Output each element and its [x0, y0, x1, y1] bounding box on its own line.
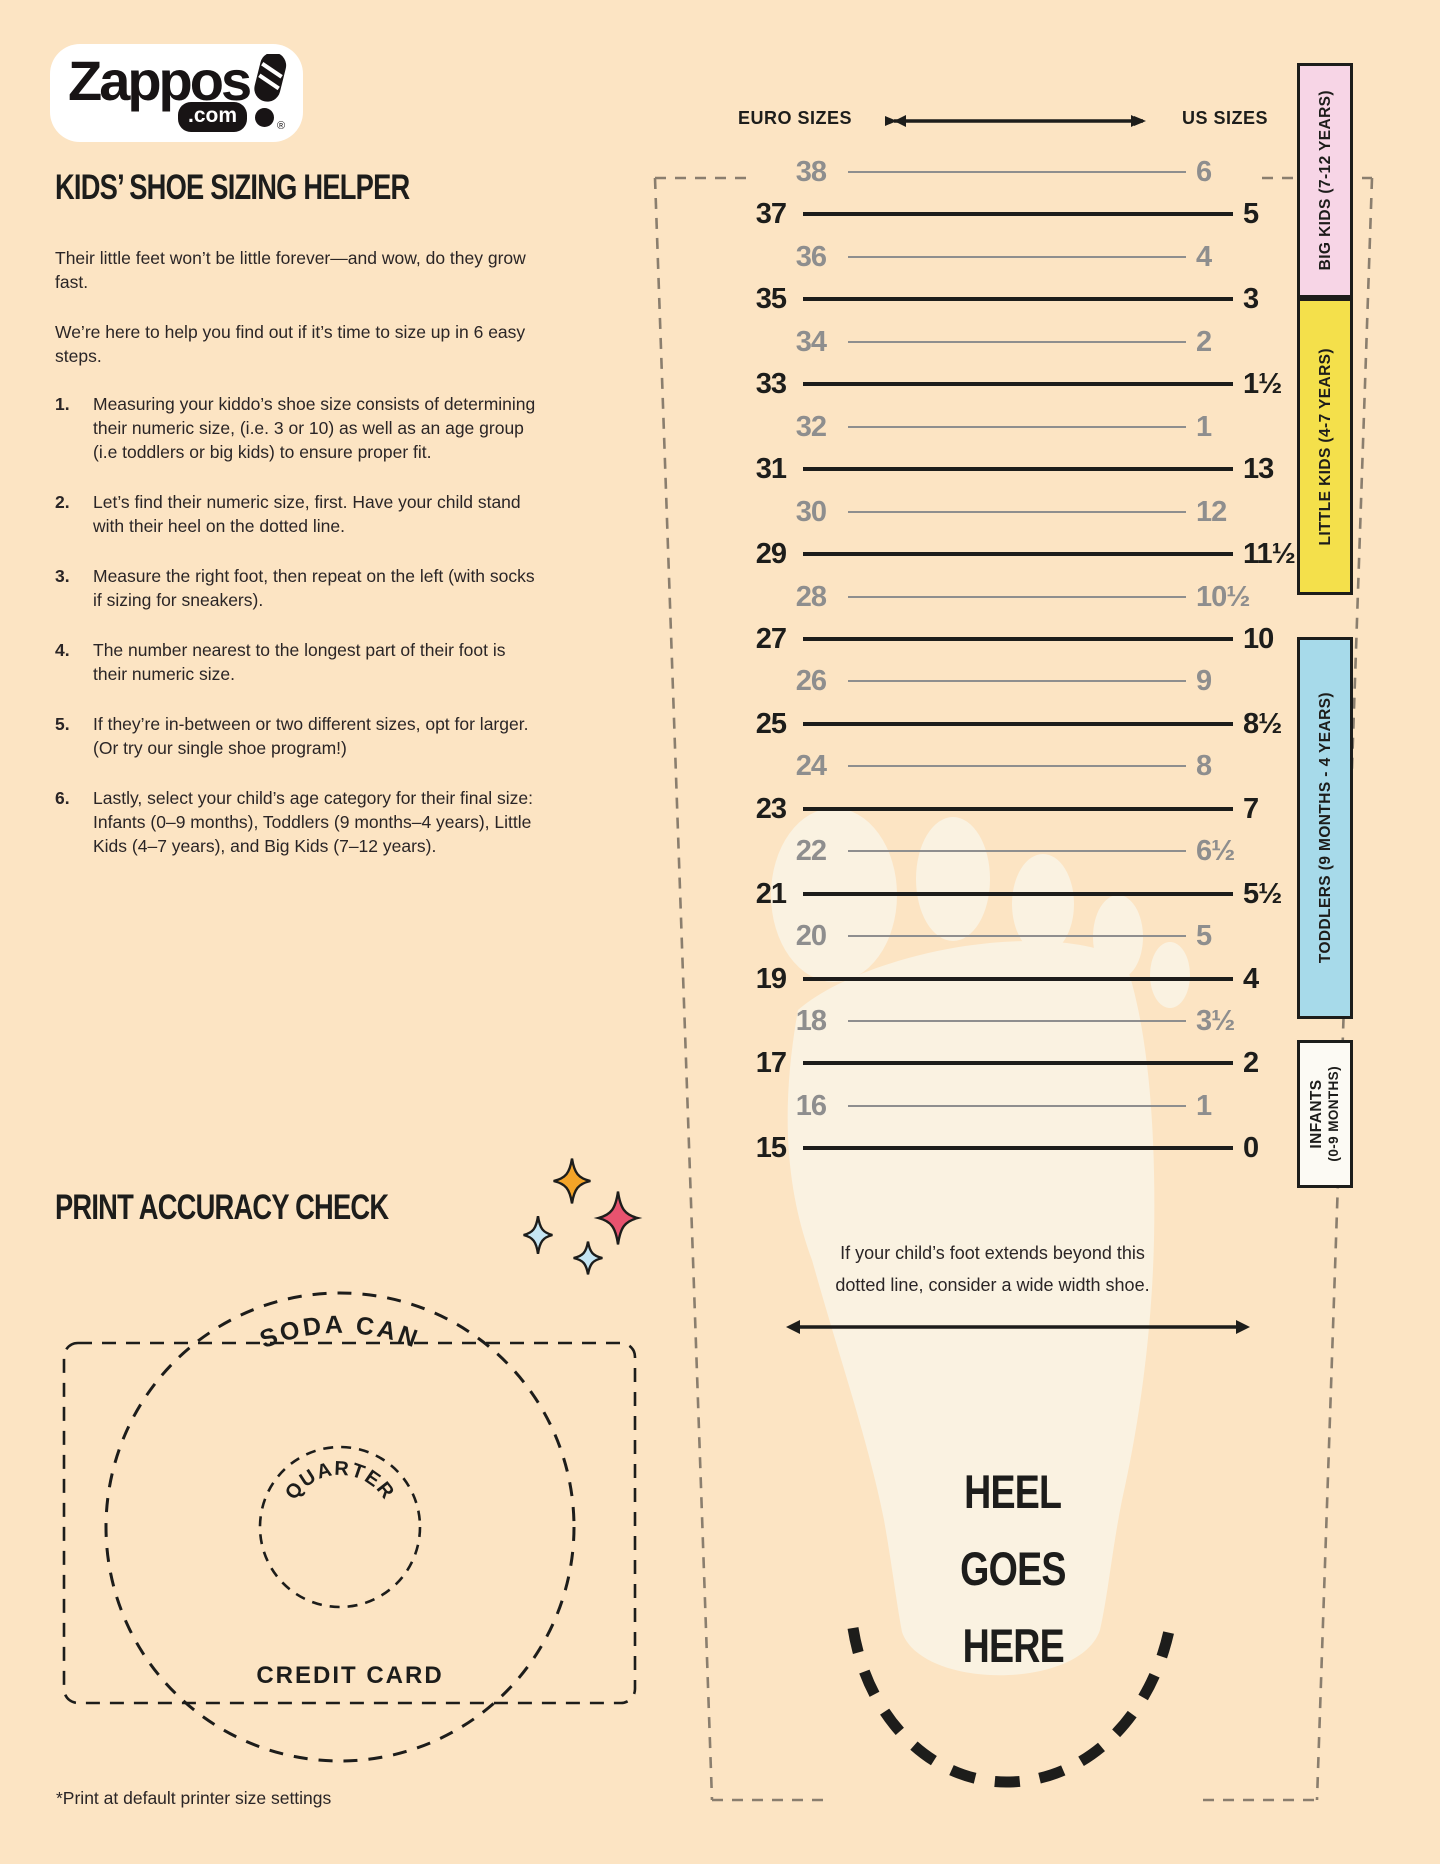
size-row: 15 0	[0, 1133, 1440, 1165]
size-row: 36 4	[0, 242, 1440, 274]
size-row-line	[848, 511, 1186, 513]
size-row-line	[803, 1146, 1233, 1150]
size-row: 37 5	[0, 199, 1440, 231]
size-row-line	[848, 850, 1186, 852]
size-row-line	[803, 382, 1233, 386]
size-row-line	[803, 807, 1233, 811]
euro-size-value: 16	[600, 1091, 826, 1121]
size-row-line	[848, 765, 1186, 767]
size-row-line	[803, 297, 1233, 301]
euro-size-value: 25	[600, 709, 786, 739]
size-row: 34 2	[0, 327, 1440, 359]
age-band-big-kids-label: BIG KIDS (7-12 YEARS)	[1317, 90, 1334, 270]
us-size-value: 12	[1196, 497, 1226, 527]
size-row: 33 1½	[0, 369, 1440, 401]
size-row-line	[803, 977, 1233, 981]
size-row: 22 6½	[0, 836, 1440, 868]
heel-goes-here-line2: GOES	[863, 1541, 1163, 1596]
size-row: 18 3½	[0, 1006, 1440, 1038]
us-size-value: 0	[1243, 1133, 1258, 1163]
size-row: 32 1	[0, 412, 1440, 444]
size-row-line	[803, 892, 1233, 896]
size-row: 23 7	[0, 794, 1440, 826]
size-row-line	[848, 1105, 1186, 1107]
euro-size-value: 27	[600, 624, 786, 654]
euro-size-value: 20	[600, 921, 826, 951]
size-row-line	[803, 637, 1233, 641]
euro-size-value: 18	[600, 1006, 826, 1036]
kids-shoe-sizing-sheet: SODA CAN QUARTER CREDIT CARD Zappos	[0, 0, 1440, 1864]
us-size-value: 8½	[1243, 709, 1281, 739]
size-row-line	[848, 1020, 1186, 1022]
size-row-line	[803, 212, 1233, 216]
euro-size-value: 21	[600, 879, 786, 909]
size-row-line	[803, 552, 1233, 556]
wide-width-note-line1: If your child’s foot extends beyond this	[740, 1241, 1245, 1265]
size-row: 30 12	[0, 497, 1440, 529]
size-row: 26 9	[0, 666, 1440, 698]
us-size-value: 3	[1243, 284, 1258, 314]
euro-size-value: 36	[600, 242, 826, 272]
age-band-infants-line1: INFANTS	[1308, 1066, 1325, 1162]
us-size-value: 1	[1196, 412, 1211, 442]
age-band-infants-label: INFANTS (0-9 MONTHS)	[1308, 1066, 1342, 1162]
euro-size-value: 26	[600, 666, 826, 696]
euro-size-value: 30	[600, 497, 826, 527]
size-row: 19 4	[0, 964, 1440, 996]
us-size-value: 4	[1196, 242, 1211, 272]
age-band-toddlers-label: TODDLERS (9 MONTHS - 4 YEARS)	[1317, 692, 1334, 963]
us-size-value: 6½	[1196, 836, 1234, 866]
size-row-line	[848, 680, 1186, 682]
euro-size-value: 35	[600, 284, 786, 314]
us-size-value: 2	[1243, 1048, 1258, 1078]
size-row: 16 1	[0, 1091, 1440, 1123]
age-band-big-kids: BIG KIDS (7-12 YEARS)	[1297, 63, 1353, 298]
age-band-infants-line2: (0-9 MONTHS)	[1325, 1066, 1342, 1162]
euro-size-value: 29	[600, 539, 786, 569]
age-band-little-kids-label: LITTLE KIDS (4-7 YEARS)	[1317, 348, 1334, 546]
us-size-value: 3½	[1196, 1006, 1234, 1036]
size-row-line	[848, 935, 1186, 937]
size-row: 21 5½	[0, 879, 1440, 911]
us-size-value: 5½	[1243, 879, 1281, 909]
size-row-line	[803, 1061, 1233, 1065]
us-size-value: 4	[1243, 964, 1258, 994]
age-band-infants: INFANTS (0-9 MONTHS)	[1297, 1040, 1353, 1188]
euro-size-value: 15	[600, 1133, 786, 1163]
euro-size-value: 38	[600, 157, 826, 187]
euro-size-value: 19	[600, 964, 786, 994]
us-size-value: 7	[1243, 794, 1258, 824]
size-row-line	[848, 256, 1186, 258]
euro-size-value: 24	[600, 751, 826, 781]
euro-size-value: 34	[600, 327, 826, 357]
size-ruler: 38 6 37 5 36 4 35 3 34	[0, 0, 1440, 1864]
us-size-value: 11½	[1243, 539, 1295, 569]
us-size-value: 10½	[1196, 582, 1249, 612]
age-band-little-kids: LITTLE KIDS (4-7 YEARS)	[1297, 298, 1353, 595]
size-row: 24 8	[0, 751, 1440, 783]
us-size-value: 9	[1196, 666, 1211, 696]
euro-size-value: 23	[600, 794, 786, 824]
us-size-value: 1	[1196, 1091, 1211, 1121]
size-row: 17 2	[0, 1048, 1440, 1080]
age-band-toddlers: TODDLERS (9 MONTHS - 4 YEARS)	[1297, 637, 1353, 1019]
euro-size-value: 32	[600, 412, 826, 442]
size-row-line	[848, 341, 1186, 343]
euro-size-value: 31	[600, 454, 786, 484]
us-size-value: 8	[1196, 751, 1211, 781]
size-row: 35 3	[0, 284, 1440, 316]
size-row: 25 8½	[0, 709, 1440, 741]
size-row: 20 5	[0, 921, 1440, 953]
size-row-line	[803, 467, 1233, 471]
size-row: 38 6	[0, 157, 1440, 189]
size-row-line	[848, 426, 1186, 428]
us-size-value: 10	[1243, 624, 1273, 654]
us-size-value: 5	[1196, 921, 1211, 951]
size-row-line	[848, 171, 1186, 173]
euro-size-value: 33	[600, 369, 786, 399]
euro-size-value: 28	[600, 582, 826, 612]
us-size-value: 2	[1196, 327, 1211, 357]
size-row: 27 10	[0, 624, 1440, 656]
euro-size-value: 17	[600, 1048, 786, 1078]
size-row: 28 10½	[0, 582, 1440, 614]
euro-size-value: 22	[600, 836, 826, 866]
us-size-value: 13	[1243, 454, 1273, 484]
us-size-value: 1½	[1243, 369, 1281, 399]
size-row: 29 11½	[0, 539, 1440, 571]
heel-goes-here-line3: HERE	[863, 1618, 1163, 1673]
heel-goes-here-line1: HEEL	[863, 1464, 1163, 1519]
size-row: 31 13	[0, 454, 1440, 486]
wide-width-note-line2: dotted line, consider a wide width shoe.	[740, 1273, 1245, 1297]
size-row-line	[848, 596, 1186, 598]
euro-size-value: 37	[600, 199, 786, 229]
us-size-value: 6	[1196, 157, 1211, 187]
size-row-line	[803, 722, 1233, 726]
us-size-value: 5	[1243, 199, 1258, 229]
